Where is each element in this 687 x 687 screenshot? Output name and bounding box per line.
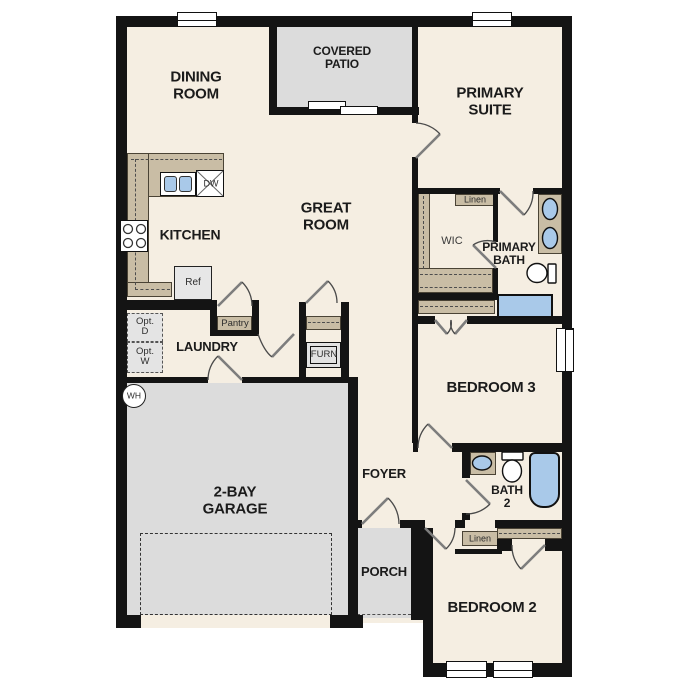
pantry-label: Pantry [221,319,248,329]
primary-suite-label: PRIMARY SUITE [456,86,523,119]
wall [400,520,425,528]
wall [493,193,498,242]
window [177,12,217,27]
bedroom-3-label: BEDROOM 3 [446,380,535,397]
linen-lower-label: Linen [469,534,491,543]
laundry-label: LAUNDRY [176,340,238,354]
wall [341,302,349,383]
garage-door-dashed-outline [140,533,332,615]
bedroom3-closet-shelf [418,300,495,314]
opt-dryer-label: Opt. D [136,317,154,337]
furnace-label: FURN [311,350,337,360]
primary-bath-label: PRIMARY BATH [482,241,536,267]
wall [330,615,363,628]
wall [462,513,470,520]
wic-shelf-dash [420,274,491,275]
wall [116,300,217,310]
wic-shelf-left [418,193,430,271]
covered-patio-label: COVERED PATIO [313,45,371,71]
sink-basin-icon [179,176,192,192]
dining-room-label: DINING ROOM [170,70,221,103]
wall [116,615,141,628]
counter-dash-line [135,289,170,290]
bedroom3-closet-dash [420,306,493,307]
bath2-vanity-counter [470,452,496,475]
window [493,661,533,678]
wall [455,520,465,528]
dishwasher-label: DW [204,179,219,188]
wall [413,293,498,300]
wall [412,157,418,443]
wic-shelf-dash [420,287,491,288]
foyer-label: FOYER [362,467,406,481]
wic-shelf-bottom [418,268,493,293]
wall [413,443,418,452]
bedroom-2-label: BEDROOM 2 [447,600,536,617]
wall [418,188,500,194]
bath2-tub [529,452,560,508]
primary-vanity-counter [538,194,562,254]
wall [545,539,562,551]
refrigerator-label: Ref [185,278,201,289]
wall [493,268,498,293]
garage-label: 2-BAY GARAGE [203,485,268,518]
linen-upper-label: Linen [464,195,486,204]
wall [413,316,435,324]
counter-dash-line [131,159,222,160]
wall [269,16,277,115]
wall [411,528,423,620]
wall [242,377,358,383]
bedroom2-closet-dash [499,533,560,534]
primary-shower [497,294,553,318]
opt-washer-label: Opt. W [136,347,154,367]
porch-label: PORCH [361,565,407,579]
wall [423,528,433,663]
kitchen-label: KITCHEN [160,227,221,242]
wall [533,188,562,194]
sink-basin-icon [164,176,177,192]
wall [462,452,470,478]
great-room-label: GREAT ROOM [301,201,351,234]
wall [299,302,306,383]
wall [495,520,572,528]
bath-2-label: BATH 2 [491,484,523,510]
window [446,661,487,678]
furnace-shelf-dash [308,322,339,323]
wall [348,377,358,620]
wic-shelf-dash [423,196,424,269]
wall [497,539,512,551]
wall [455,549,502,554]
kitchen-sink [160,172,196,196]
wic-label: WIC [441,236,462,248]
porch-edge-dashed [357,614,411,615]
wall [452,443,572,452]
window [556,328,574,372]
water-heater-label: WH [127,392,141,401]
wall [210,330,259,336]
wall [412,16,418,123]
sliding-patio-door [340,106,378,115]
furnace-closet-shelf [306,316,341,330]
wall [116,377,208,383]
window [472,12,512,27]
range [120,220,148,252]
wall [116,16,127,628]
floor-plan-canvas: DINING ROOM COVERED PATIO PRIMARY SUITE … [0,0,687,687]
